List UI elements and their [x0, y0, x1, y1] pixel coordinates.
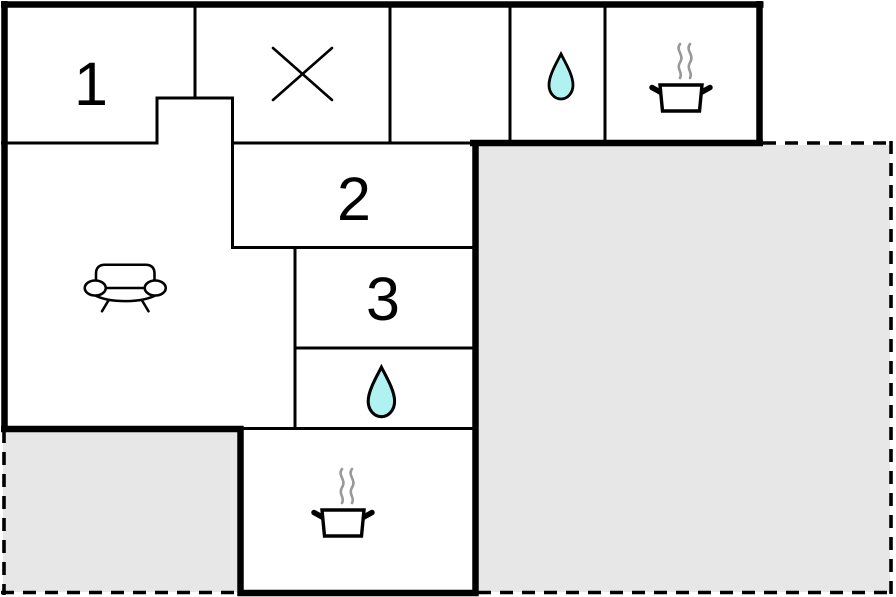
sofa-base-curve: [95, 296, 155, 302]
terrace-right: [477, 145, 890, 592]
sofa-armrest-right: [145, 281, 166, 296]
cooking-pot-icon: [314, 469, 372, 536]
room-1-label: 1: [74, 50, 108, 118]
pot-body: [660, 85, 702, 111]
terrace-bottom-left: [3, 431, 238, 592]
sofa-armrest-left: [85, 281, 106, 296]
pot-body: [322, 510, 364, 536]
water-drop-icon: [368, 367, 394, 417]
room-3-label: 3: [366, 265, 400, 333]
cooking-pot-icon: [652, 44, 710, 111]
water-drop-icon: [549, 54, 573, 99]
sofa-icon: [85, 265, 166, 312]
cross-icon: [273, 48, 332, 100]
floor-plan: 1 2 3: [0, 0, 896, 597]
room-2-label: 2: [337, 165, 371, 233]
floor-plan-canvas: 1 2 3: [0, 0, 896, 597]
